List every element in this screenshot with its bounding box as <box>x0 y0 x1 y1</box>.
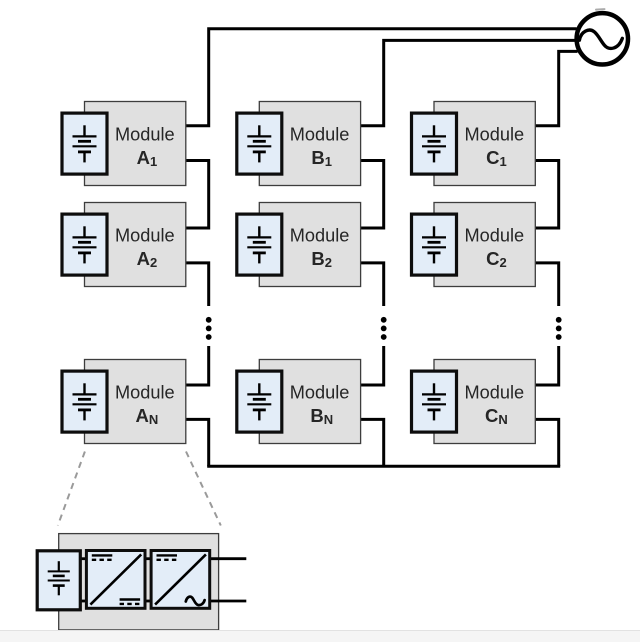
svg-text:Module: Module <box>464 226 524 246</box>
svg-text:Module: Module <box>290 226 350 246</box>
svg-text:Module: Module <box>290 125 350 145</box>
svg-text:Module: Module <box>115 226 175 246</box>
svg-text:Module: Module <box>290 383 350 403</box>
svg-text:Module: Module <box>115 125 175 145</box>
svg-text:Module: Module <box>464 383 524 403</box>
svg-text:Module: Module <box>464 125 524 145</box>
svg-text:Module: Module <box>115 383 175 403</box>
